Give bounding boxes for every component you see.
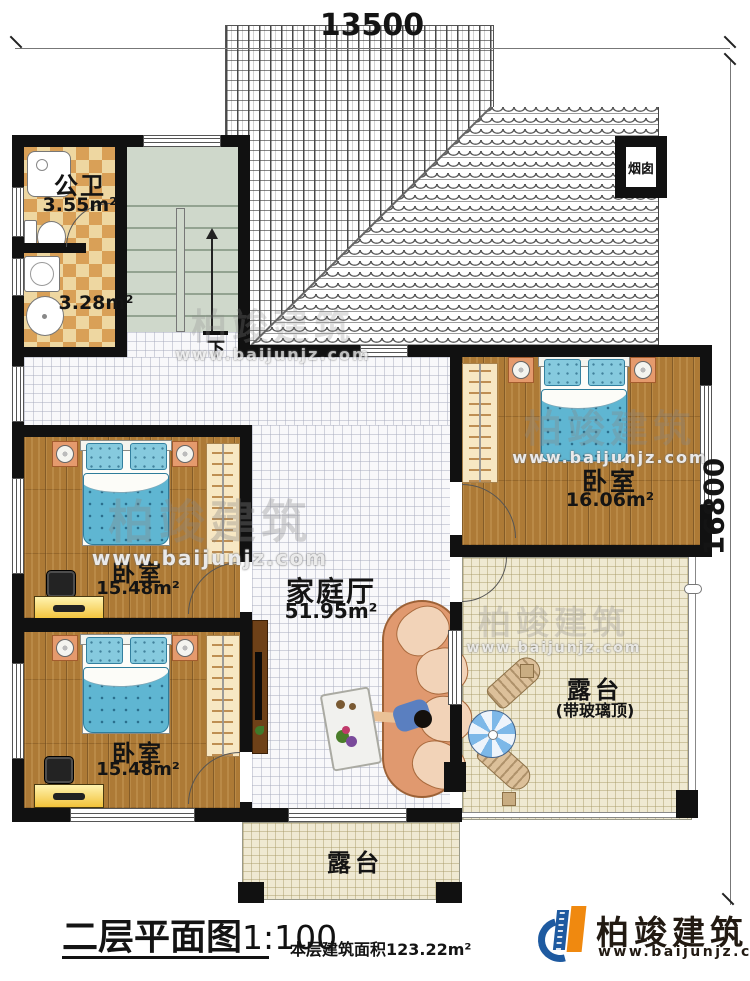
washing-machine-drum <box>30 262 54 286</box>
lamp-icon <box>176 445 194 463</box>
room-area: 3.55m² <box>26 194 134 216</box>
wall <box>450 602 462 630</box>
wall <box>238 135 250 357</box>
room-area: 51.95m² <box>276 599 386 623</box>
wall <box>12 425 252 437</box>
wall <box>450 357 462 482</box>
nightstand <box>172 635 198 661</box>
bed-quilt <box>541 389 627 461</box>
window <box>12 258 24 296</box>
lamp-icon <box>512 361 530 379</box>
wall <box>12 618 252 632</box>
wardrobe <box>206 635 240 757</box>
table-item <box>336 700 345 709</box>
stairs-rail <box>176 208 185 332</box>
window <box>12 187 24 237</box>
lamp-icon <box>176 639 194 657</box>
plan-title: 二层平面图 <box>62 908 242 960</box>
wall <box>252 808 288 822</box>
wall-pier <box>676 790 698 818</box>
bed-pillow <box>86 443 123 470</box>
wall <box>12 347 127 357</box>
terrace-right-railing <box>688 557 696 818</box>
wardrobe <box>206 443 240 565</box>
hall-floor-upper <box>24 357 450 425</box>
dresser-desk <box>34 596 104 620</box>
nightstand <box>52 441 78 467</box>
chair <box>46 570 76 598</box>
desk-item <box>53 793 85 800</box>
wall <box>240 437 252 562</box>
bed-pillow <box>86 637 123 664</box>
wall <box>450 705 462 762</box>
floor-area-note: 本层建筑面积123.22m² <box>290 936 460 960</box>
lamp-icon <box>56 445 74 463</box>
sliding-door-track <box>288 808 407 822</box>
plant-icon <box>255 726 264 735</box>
window <box>143 135 221 147</box>
room-area: 16.06m² <box>558 489 662 511</box>
room-note: (带玻璃顶) <box>530 697 660 721</box>
wall-pier <box>436 882 462 903</box>
bed-pillow <box>588 359 625 386</box>
bed-pillow <box>130 637 167 664</box>
window <box>360 345 408 357</box>
nightstand <box>52 635 78 661</box>
drain-detail <box>684 584 702 594</box>
terrace-right-railing-bottom <box>462 812 688 818</box>
wall <box>450 545 712 557</box>
wall-pier <box>238 882 264 903</box>
room-name: 露台 <box>312 843 398 878</box>
bed-quilt <box>83 473 169 545</box>
room-area: 3.28m² <box>42 292 150 314</box>
stairs-arrow-head <box>206 228 218 239</box>
tv-screen <box>255 652 262 720</box>
dimension-tick <box>724 36 737 49</box>
stairs-down-label: 下 <box>198 335 234 361</box>
quilt-fold <box>541 389 627 409</box>
title-underline <box>62 956 269 959</box>
floor-plan: 烟囱 <box>0 0 750 981</box>
window <box>448 630 462 705</box>
wall <box>450 535 462 545</box>
lamp-icon <box>56 639 74 657</box>
flower-vase <box>346 736 357 747</box>
quilt-fold <box>83 667 169 687</box>
umbrella-pole <box>488 730 498 740</box>
bed-bottom-left <box>82 634 170 734</box>
logo: 柏竣建筑 www.baijunjz.com <box>538 902 738 968</box>
dimension-tick <box>10 36 23 49</box>
stairs-arrow-line <box>211 237 213 332</box>
dimension-line-top <box>15 48 730 49</box>
side-table <box>502 792 516 806</box>
nightstand <box>508 357 534 383</box>
dimension-width: 13500 <box>310 8 434 43</box>
person-head <box>414 710 432 728</box>
window <box>12 478 24 574</box>
window <box>70 808 195 822</box>
flower-vase <box>342 726 350 734</box>
desk-item <box>53 605 85 612</box>
bed-pillow <box>130 443 167 470</box>
wall-pier <box>444 762 466 792</box>
wardrobe <box>462 363 498 483</box>
bed-pillow <box>544 359 581 386</box>
chimney-label: 烟囱 <box>613 158 669 177</box>
logo-building-icon <box>567 906 587 952</box>
window <box>12 663 24 759</box>
bed-quilt <box>83 667 169 733</box>
wall <box>462 345 712 357</box>
nightstand <box>630 357 656 383</box>
nightstand <box>172 441 198 467</box>
bed-mid-left <box>82 440 170 546</box>
window <box>12 366 24 422</box>
bed-top-right <box>540 356 628 462</box>
basin-drain <box>42 314 47 319</box>
room-area: 15.48m² <box>88 578 188 599</box>
table-item <box>349 703 356 710</box>
logo-site: www.baijunjz.com <box>598 944 750 960</box>
lamp-icon <box>634 361 652 379</box>
chair <box>44 756 74 784</box>
quilt-fold <box>83 473 169 493</box>
dresser-desk <box>34 784 104 808</box>
dimension-height: 16800 <box>698 445 731 569</box>
wall <box>407 808 462 822</box>
wall <box>250 345 462 357</box>
side-table <box>520 664 534 678</box>
wall <box>240 632 252 752</box>
room-area: 15.48m² <box>88 759 188 780</box>
